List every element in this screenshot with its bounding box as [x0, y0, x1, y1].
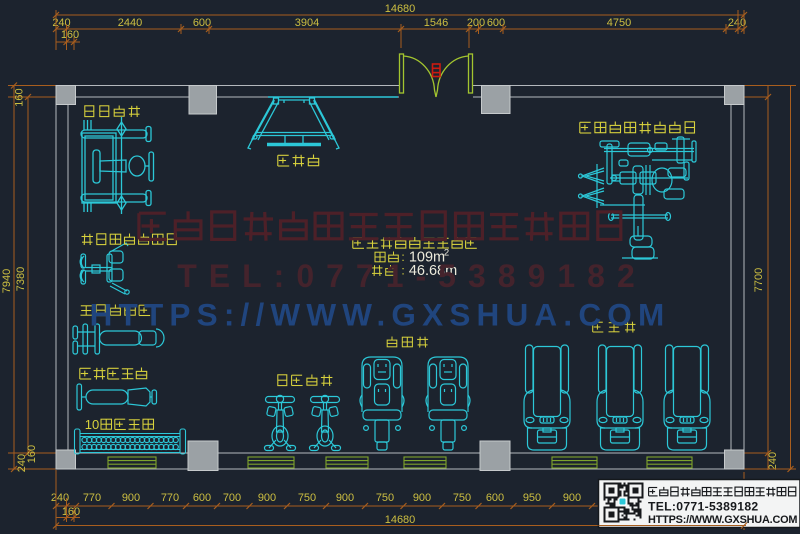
svg-text:950: 950 — [523, 492, 541, 504]
svg-text:240: 240 — [767, 452, 779, 470]
svg-text:600: 600 — [193, 492, 211, 504]
svg-text:3904: 3904 — [295, 17, 319, 29]
svg-text:900: 900 — [258, 492, 276, 504]
svg-text:160: 160 — [26, 445, 38, 463]
svg-text:4750: 4750 — [607, 17, 631, 29]
svg-text:770: 770 — [83, 492, 101, 504]
svg-text:160: 160 — [62, 506, 80, 518]
svg-text:TEL:0771-5389182: TEL:0771-5389182 — [648, 500, 759, 514]
svg-text:240: 240 — [52, 17, 70, 29]
svg-text:240: 240 — [728, 17, 746, 29]
svg-text:200: 200 — [467, 17, 485, 29]
svg-text:2: 2 — [444, 248, 449, 259]
svg-text:750: 750 — [453, 492, 471, 504]
svg-text:7700: 7700 — [753, 268, 765, 292]
svg-text:770: 770 — [161, 492, 179, 504]
svg-text:14680: 14680 — [385, 514, 416, 526]
svg-text:HTTPS://WWW.GXSHUA.COM: HTTPS://WWW.GXSHUA.COM — [648, 514, 797, 526]
svg-text:900: 900 — [336, 492, 354, 504]
svg-text:900: 900 — [122, 492, 140, 504]
svg-text:750: 750 — [298, 492, 316, 504]
svg-text:600: 600 — [486, 492, 504, 504]
svg-text:900: 900 — [413, 492, 431, 504]
svg-text:700: 700 — [223, 492, 241, 504]
svg-text:7380: 7380 — [15, 267, 27, 291]
svg-text:7940: 7940 — [1, 269, 13, 293]
svg-text:10: 10 — [85, 417, 99, 432]
svg-text:750: 750 — [376, 492, 394, 504]
svg-text:600: 600 — [487, 17, 505, 29]
svg-text:160: 160 — [61, 29, 79, 41]
svg-text:160: 160 — [14, 88, 26, 106]
svg-text:900: 900 — [563, 492, 581, 504]
svg-text:2440: 2440 — [118, 17, 142, 29]
svg-text:HTTPS://WWW.GXSHUA.COM: HTTPS://WWW.GXSHUA.COM — [90, 297, 671, 333]
svg-text:1546: 1546 — [424, 17, 448, 29]
svg-text:600: 600 — [193, 17, 211, 29]
svg-text:TEL:0771-5389182: TEL:0771-5389182 — [177, 258, 647, 294]
svg-text:14680: 14680 — [385, 3, 416, 15]
